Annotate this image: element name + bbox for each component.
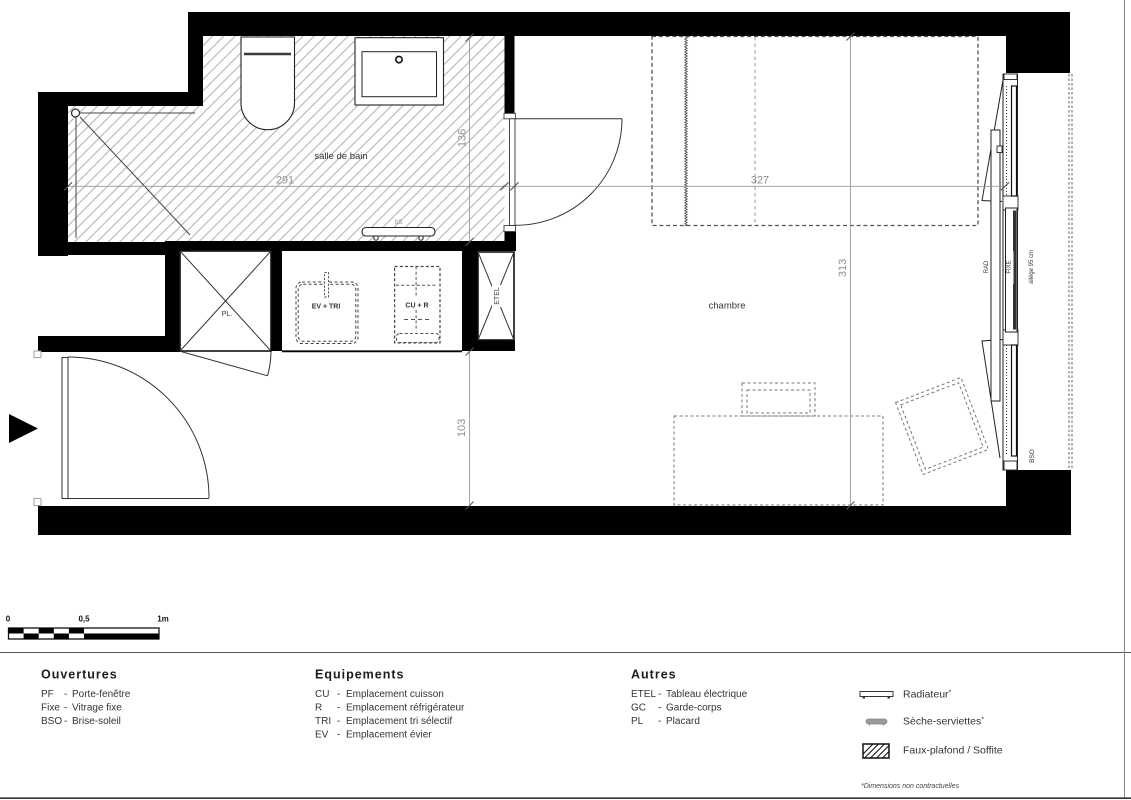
svg-text:CU: CU (315, 689, 329, 700)
svg-text:R: R (315, 703, 322, 714)
svg-text:EV + TRI: EV + TRI (312, 303, 341, 310)
svg-text:313: 313 (837, 259, 849, 277)
svg-text:Emplacement tri sélectif: Emplacement tri sélectif (346, 716, 452, 727)
svg-text:-: - (337, 716, 340, 727)
svg-text:Radiateur*: Radiateur* (903, 689, 952, 701)
svg-text:allège 95 cm: allège 95 cm (1029, 250, 1035, 284)
svg-text:Emplacement évier: Emplacement évier (346, 730, 432, 741)
svg-text:Emplacement réfrigérateur: Emplacement réfrigérateur (346, 703, 465, 714)
svg-text:-: - (64, 689, 67, 700)
svg-text:Faux-plafond / Soffite: Faux-plafond / Soffite (903, 745, 1003, 757)
svg-text:0,5: 0,5 (78, 615, 90, 624)
svg-text:-: - (64, 703, 67, 714)
svg-text:PL: PL (631, 716, 644, 727)
svg-text:Emplacement cuisson: Emplacement cuisson (346, 689, 444, 700)
svg-text:Sèche-serviettes*: Sèche-serviettes* (903, 716, 984, 728)
svg-text:TRI: TRI (315, 716, 331, 727)
svg-text:136: 136 (457, 129, 469, 147)
svg-text:CU + R: CU + R (405, 303, 428, 310)
svg-text:-: - (337, 703, 340, 714)
svg-text:Garde-corps: Garde-corps (666, 703, 722, 714)
svg-text:291: 291 (276, 175, 294, 187)
svg-text:chambre: chambre (709, 301, 746, 312)
svg-text:*Dimensions non contractuelles: *Dimensions non contractuelles (861, 783, 960, 790)
svg-text:Porte-fenêtre: Porte-fenêtre (72, 689, 131, 700)
svg-text:ETEL: ETEL (494, 287, 501, 305)
svg-text:GC: GC (631, 703, 646, 714)
svg-text:PF: PF (41, 689, 54, 700)
svg-text:FIXE: FIXE (1007, 260, 1013, 273)
svg-text:Equipements: Equipements (315, 668, 405, 682)
svg-text:327: 327 (751, 175, 769, 187)
svg-text:1m: 1m (157, 615, 169, 624)
svg-text:ETEL: ETEL (631, 689, 656, 700)
svg-text:-: - (337, 730, 340, 741)
svg-text:PL.: PL. (222, 311, 233, 318)
svg-text:-: - (658, 716, 661, 727)
svg-text:RAD: RAD (984, 260, 990, 273)
svg-text:Placard: Placard (666, 716, 700, 727)
svg-text:-: - (337, 689, 340, 700)
svg-text:BSO: BSO (1029, 449, 1036, 463)
svg-text:-: - (658, 689, 661, 700)
svg-text:0: 0 (6, 615, 11, 624)
svg-text:Brise-soleil: Brise-soleil (72, 716, 121, 727)
svg-text:-: - (64, 716, 67, 727)
svg-text:Ouvertures: Ouvertures (41, 668, 118, 682)
svg-text:SS: SS (394, 220, 402, 226)
svg-text:Fixe: Fixe (41, 703, 60, 714)
svg-text:Tableau électrique: Tableau électrique (666, 689, 748, 700)
svg-text:Autres: Autres (631, 668, 677, 682)
svg-text:103: 103 (456, 419, 468, 437)
svg-text:EV: EV (315, 730, 329, 741)
svg-text:BSO: BSO (41, 716, 62, 727)
svg-text:salle de bain: salle de bain (314, 151, 367, 162)
svg-text:-: - (658, 703, 661, 714)
svg-text:Vitrage fixe: Vitrage fixe (72, 703, 122, 714)
